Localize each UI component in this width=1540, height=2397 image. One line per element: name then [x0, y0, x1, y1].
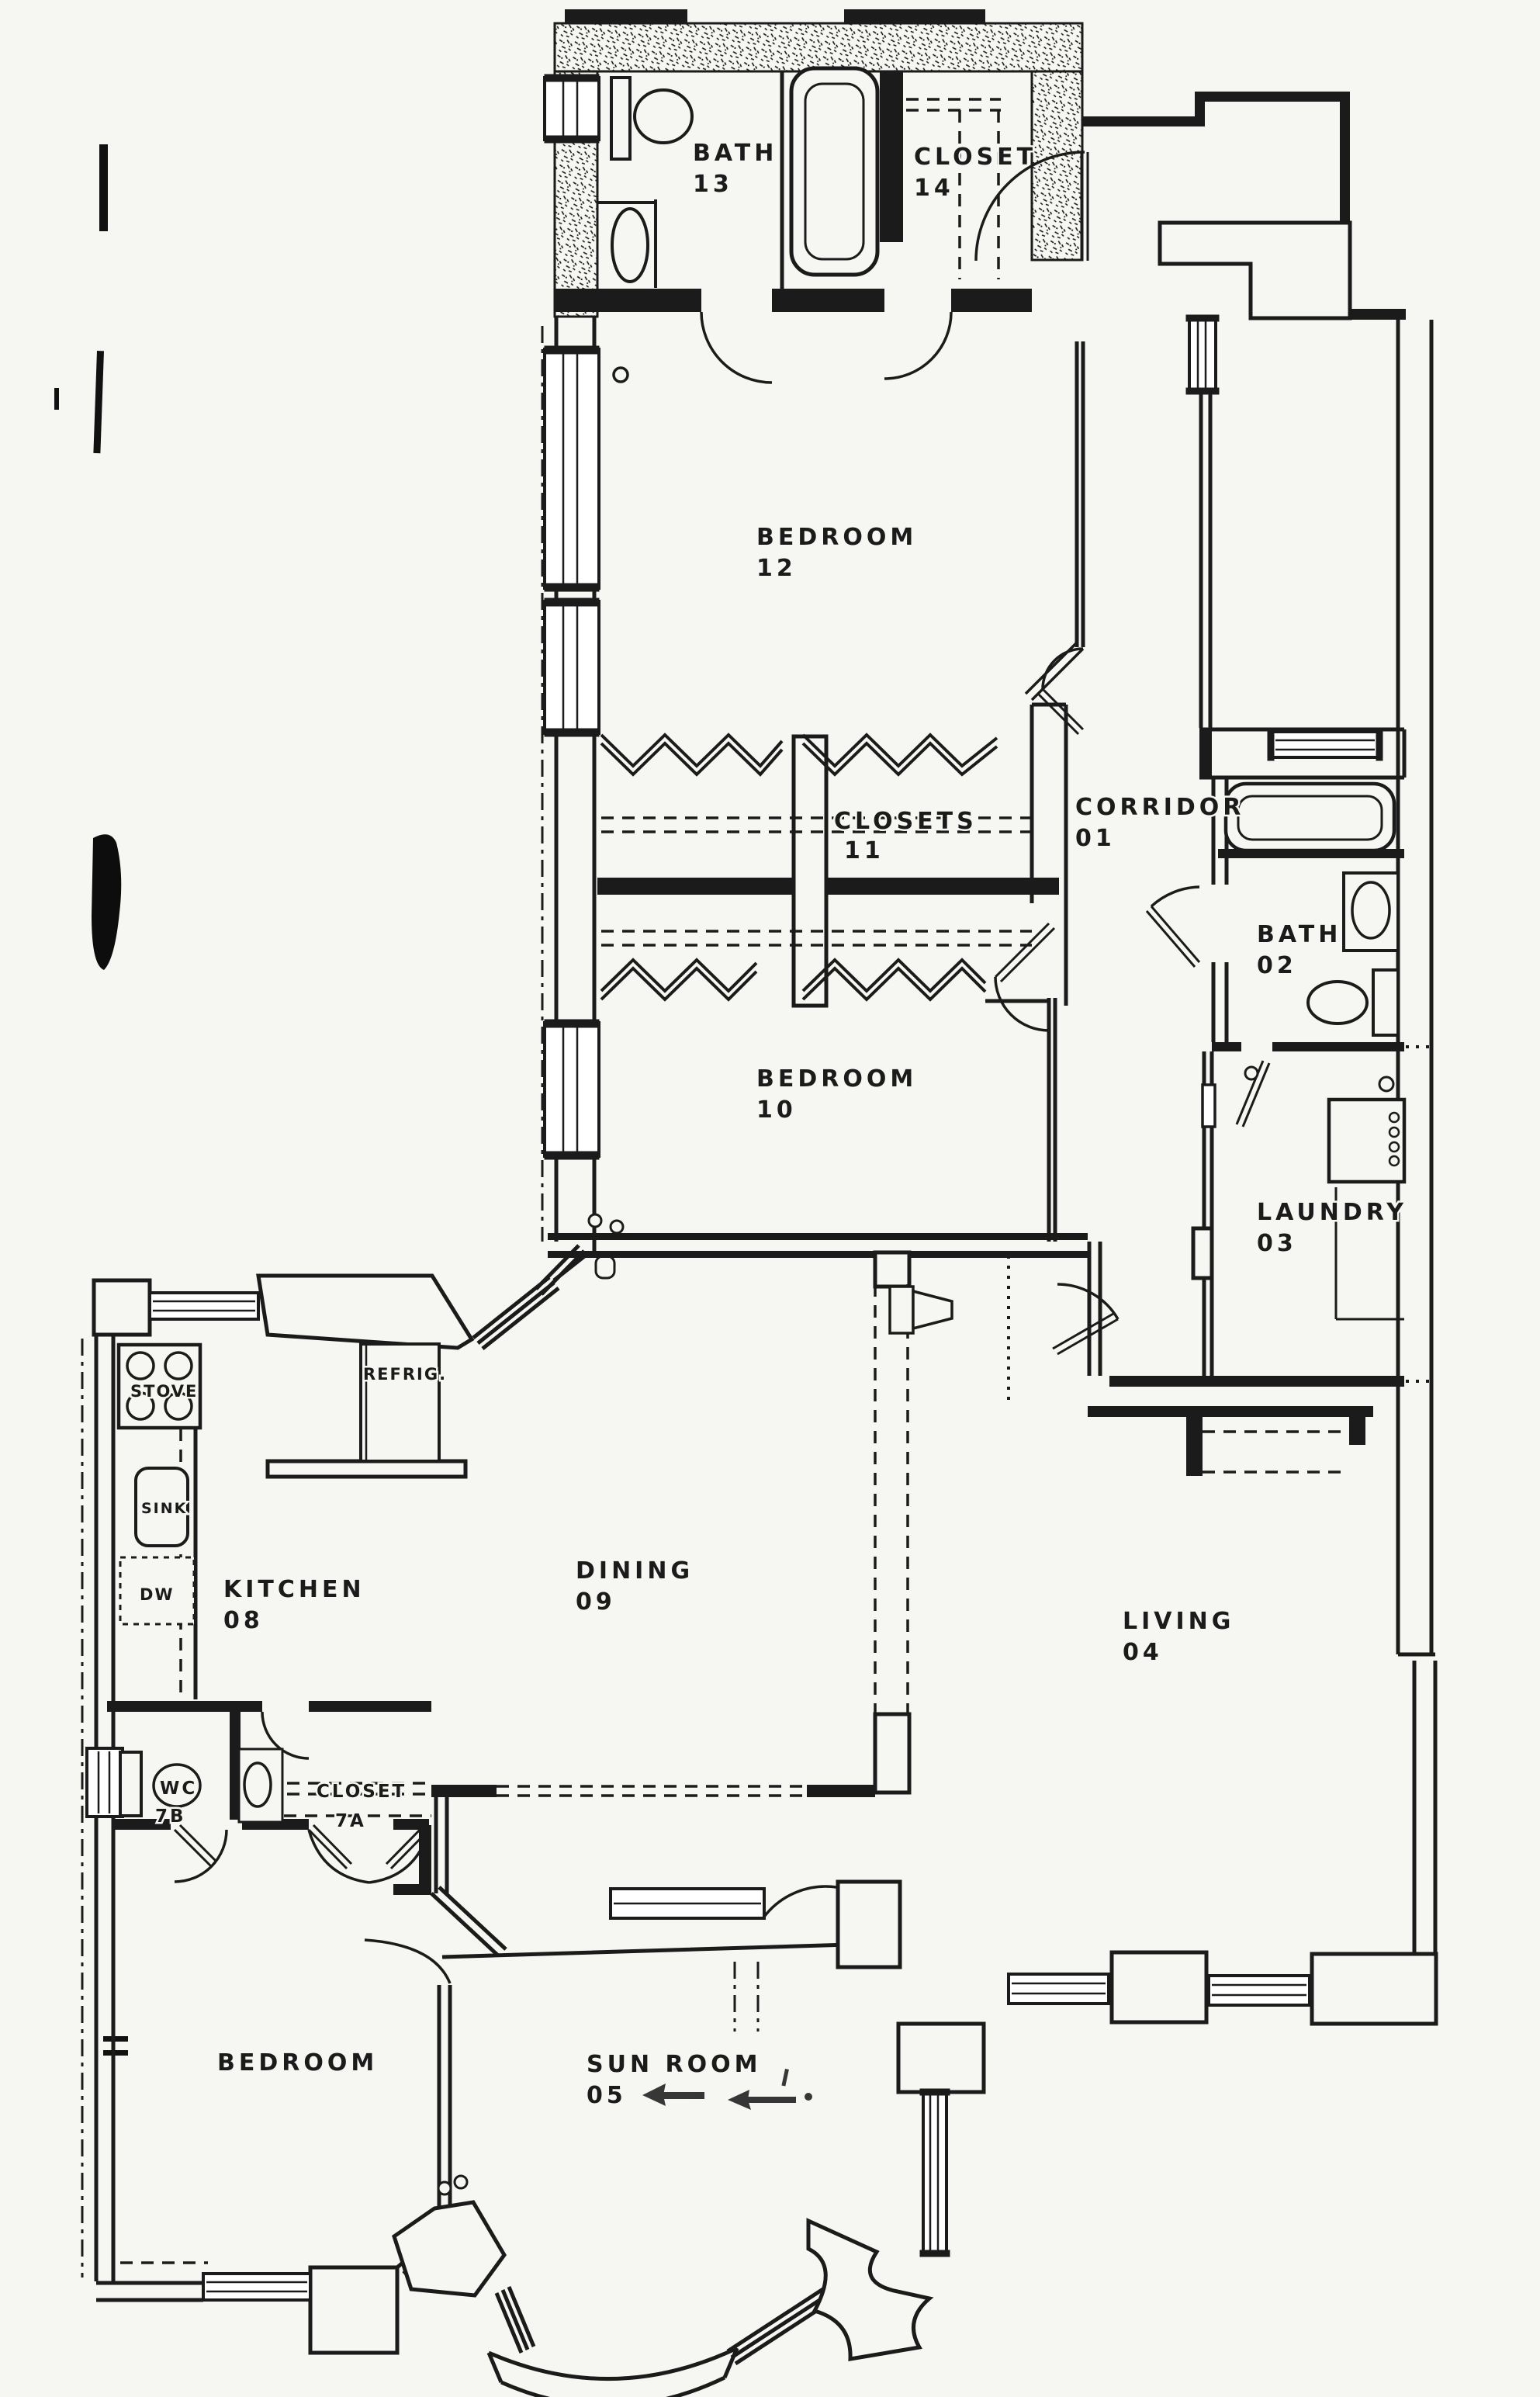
- label-sunroom05-name: SUN ROOM: [587, 2051, 761, 2078]
- kitchen-corner-pier: [94, 1280, 150, 1335]
- label-sunroom05-number: 05: [587, 2082, 627, 2109]
- door-knob-circle: [1379, 1077, 1393, 1091]
- label-bedroom-sw-name: BEDROOM: [217, 2049, 378, 2077]
- door-knob-circle: [589, 1214, 601, 1227]
- door-arc-closet14: [884, 312, 951, 379]
- label-living04-number: 04: [1123, 1639, 1163, 1666]
- living-bottom-pier: [1112, 1952, 1206, 2022]
- label-closets11-number: 11: [844, 837, 884, 864]
- refrigerator: [361, 1344, 439, 1461]
- living-se-pier: [1312, 1954, 1436, 2024]
- door-arc-hall-sunroom: [764, 1886, 836, 1917]
- artifact-mark: [781, 2069, 788, 2087]
- toilet-bowl-bath02: [1308, 982, 1367, 1024]
- door-knob-circle: [455, 2176, 467, 2188]
- refrigerator-bay-sill: [268, 1461, 465, 1477]
- window: [203, 2274, 310, 2300]
- label-kitchen08-number: 08: [223, 1607, 264, 1634]
- toilet-bowl-bath13: [635, 90, 692, 143]
- label-closets11-name: CLOSETS: [834, 808, 978, 835]
- radiator-vestibule-front: [913, 1291, 952, 1328]
- floor-plan-drawing: BATH 13 CLOSET 14 BEDROOM 12 CLOSETS 11 …: [0, 0, 1540, 2397]
- door-arc-bath13: [701, 312, 772, 383]
- sink-bath02: [1352, 882, 1389, 938]
- label-kitchen08-name: KITCHEN: [223, 1576, 365, 1603]
- label-closet14-name: CLOSET: [914, 144, 1036, 171]
- label-laundry03-name: LAUNDRY: [1257, 1199, 1407, 1226]
- label-bedroom10-name: BEDROOM: [756, 1065, 917, 1093]
- living-sw-pier: [898, 2024, 984, 2092]
- window: [1203, 1085, 1215, 1127]
- window: [611, 1889, 764, 1918]
- door-knob-circle: [438, 2182, 451, 2194]
- label-bath13-name: BATH: [693, 140, 777, 167]
- window: [545, 1020, 599, 1159]
- label-dining09-name: DINING: [576, 1557, 694, 1585]
- label-dining09-number: 09: [576, 1588, 616, 1616]
- label-closet7a-number: 7A: [335, 1811, 366, 1831]
- label-closet7a-name: CLOSET: [317, 1782, 407, 1802]
- label-bedroom12-name: BEDROOM: [756, 524, 917, 551]
- label-dishwasher: DW: [140, 1585, 175, 1604]
- washer-knob: [1389, 1156, 1399, 1166]
- wall-hatched-right: [1032, 71, 1082, 260]
- closet-center-pier: [794, 736, 826, 1006]
- sink-wc: [244, 1763, 271, 1806]
- door-leaf-wc-hall: [175, 1825, 216, 1866]
- left-arrow-icon: [642, 2084, 704, 2106]
- door-symbol-bedroom10-dining: [596, 1256, 614, 1278]
- washer-knob: [1389, 1127, 1399, 1137]
- window: [87, 1748, 123, 1817]
- stove-burner: [165, 1353, 192, 1379]
- vestibule-top-pier: [875, 1252, 909, 1287]
- window: [545, 598, 599, 736]
- artifact-dot: [805, 2093, 812, 2101]
- toilet-tank-bath13: [611, 78, 630, 159]
- label-bath13-number: 13: [693, 171, 733, 198]
- window: [1209, 1976, 1310, 2005]
- label-closet14-number: 14: [914, 175, 954, 202]
- label-refrigerator: REFRIG.: [363, 1365, 447, 1384]
- label-bath02-number: 02: [1257, 952, 1297, 979]
- label-bath02-name: BATH: [1257, 921, 1341, 948]
- label-corridor01-number: 01: [1075, 825, 1116, 852]
- room-labels: BATH 13 CLOSET 14 BEDROOM 12 CLOSETS 11 …: [155, 140, 1407, 2109]
- artifact-mark: [99, 144, 108, 231]
- door-knob-circle: [614, 368, 628, 382]
- sunroom-pier-ornate: [808, 2221, 929, 2359]
- sink-bath13: [612, 209, 648, 282]
- sunroom-pier-mid: [394, 2202, 504, 2295]
- washer-dryer: [1329, 1100, 1404, 1182]
- wall-hatched-top: [555, 23, 1082, 71]
- dining-living-pier: [875, 1714, 909, 1793]
- artifact-blob: [92, 834, 121, 970]
- bathtub-inner-bath13: [805, 84, 863, 259]
- window: [1268, 729, 1383, 760]
- window: [920, 2089, 950, 2257]
- label-corridor01-name: CORRIDOR: [1075, 794, 1244, 821]
- refrigerator-bay-wall: [258, 1276, 472, 1348]
- artifact-mark: [54, 388, 59, 410]
- entry-landing-wall: [1160, 223, 1350, 318]
- label-stove: STOVE: [130, 1382, 198, 1401]
- window: [545, 74, 599, 143]
- washer-knob: [1389, 1142, 1399, 1152]
- label-wc7b-number: 7B: [155, 1806, 186, 1827]
- window: [150, 1293, 258, 1319]
- door-knob-circle: [1245, 1067, 1258, 1079]
- left-arrow-icon: [728, 2090, 796, 2110]
- sunroom-pier-left: [310, 2267, 397, 2353]
- laundry-wall-jog: [1193, 1228, 1212, 1278]
- door-leaf-living: [1053, 1314, 1118, 1354]
- door-arc-bedroom10: [995, 977, 1049, 1031]
- label-wc7b-name: WC: [160, 1779, 197, 1799]
- dashed-lines: [120, 99, 1349, 2263]
- door-leaf-bedroom12: [1038, 689, 1083, 734]
- window: [1009, 1974, 1109, 2004]
- bathtub-inner-bath02: [1238, 796, 1382, 840]
- window: [545, 346, 599, 591]
- toilet-tank-wc: [120, 1752, 141, 1816]
- wall-break-tick: [103, 2050, 128, 2056]
- door-arc-bedroom-sw: [365, 1940, 450, 1983]
- wall-chamfer-bedroom12: [1026, 643, 1083, 700]
- washer-knob: [1389, 1113, 1399, 1122]
- floor-plan-scan: BATH 13 CLOSET 14 BEDROOM 12 CLOSETS 11 …: [0, 0, 1540, 2397]
- toilet-tank-bath02: [1373, 970, 1398, 1035]
- label-bedroom10-number: 10: [756, 1096, 797, 1124]
- radiator-vestibule: [890, 1287, 913, 1333]
- window: [1186, 315, 1219, 394]
- label-kitchen-sink: SINK: [141, 1500, 187, 1517]
- door-leaf-bath02: [1147, 906, 1199, 967]
- label-bedroom12-number: 12: [756, 555, 797, 582]
- door-leaf-entry: [1081, 152, 1088, 261]
- artifact-mark: [93, 351, 104, 453]
- door-knob-circle: [611, 1221, 623, 1233]
- label-living04-name: LIVING: [1123, 1608, 1234, 1635]
- stove-burner: [127, 1353, 154, 1379]
- door-arc-bath02: [1151, 887, 1199, 906]
- wall-break-tick: [103, 2036, 128, 2042]
- label-laundry03-number: 03: [1257, 1230, 1297, 1257]
- hall-pier: [838, 1882, 900, 1967]
